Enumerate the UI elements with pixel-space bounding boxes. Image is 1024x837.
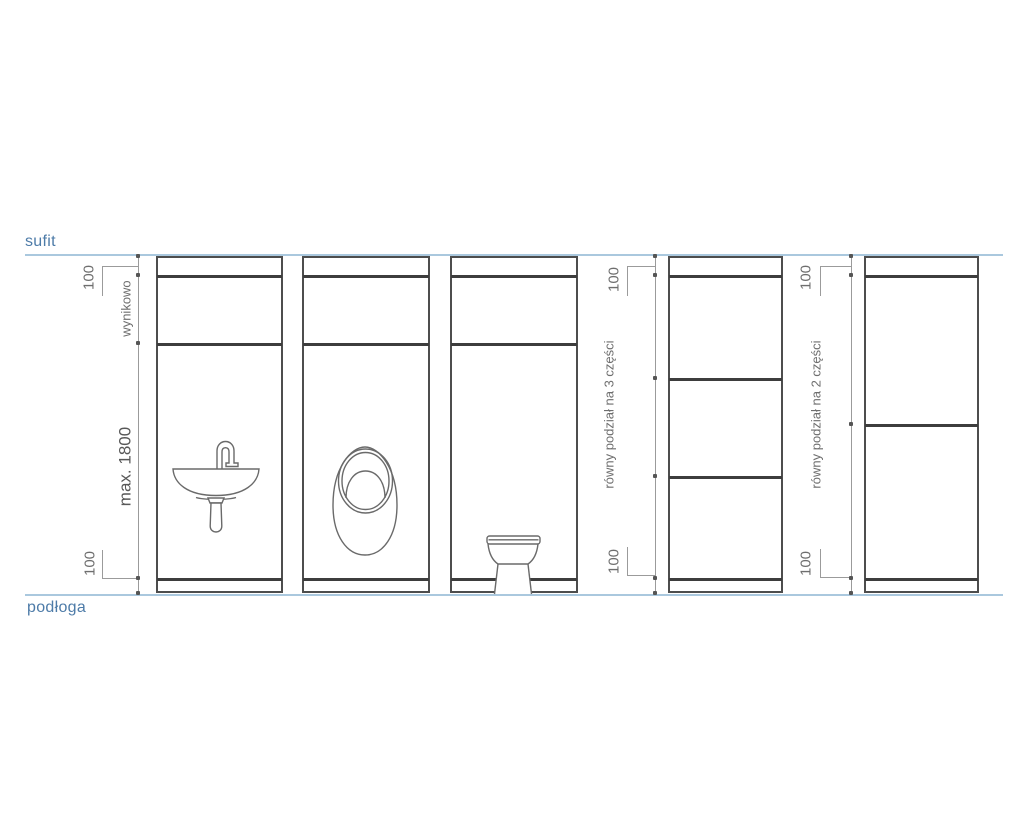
dim-leader (102, 578, 138, 579)
dim-leader (102, 550, 103, 578)
dim-100-top-panel4: 100 (607, 262, 622, 298)
dim-leader (102, 266, 103, 296)
dim-leader (820, 549, 821, 577)
dimension-tick (849, 422, 853, 426)
dim-division-2: równy podział na 2 części (810, 325, 823, 505)
panel-rail-line (865, 275, 978, 278)
panel-rail-line (157, 343, 282, 346)
panel-rail-line (303, 578, 429, 581)
dim-leader (627, 547, 628, 575)
dimension-tick (136, 591, 140, 595)
dimension-line-left (138, 255, 139, 594)
dim-leader (820, 266, 851, 267)
urinal-icon (330, 444, 400, 558)
dim-leader (627, 266, 628, 296)
dim-100-bottom-panel4: 100 (607, 544, 622, 580)
dimension-tick (653, 576, 657, 580)
toilet-icon (482, 532, 544, 596)
dim-leader (627, 575, 655, 576)
panel-division-3 (668, 256, 783, 593)
dim-max-1800: max. 1800 (117, 412, 134, 522)
panel-rail-line (451, 275, 577, 278)
panel-rail-line (865, 578, 978, 581)
panel-rail-line (451, 343, 577, 346)
panel-rail-line (157, 578, 282, 581)
dimension-tick (136, 254, 140, 258)
dimension-tick (849, 576, 853, 580)
dim-leader (820, 266, 821, 296)
panel-rail-line (303, 275, 429, 278)
dimension-tick (653, 474, 657, 478)
dimension-tick (653, 591, 657, 595)
dim-leader (627, 266, 655, 267)
panel-rail-line (865, 424, 978, 427)
dim-100-top-panel5: 100 (799, 260, 814, 296)
dimension-tick (653, 376, 657, 380)
floor-label: podłoga (27, 599, 86, 617)
panel-rail-line (303, 343, 429, 346)
elevation-diagram: sufit podłoga 100 wynikowo max. 1800 100… (0, 0, 1024, 837)
dimension-tick (136, 576, 140, 580)
panel-rail-line (669, 275, 782, 278)
dimension-tick (136, 341, 140, 345)
dimension-line-panel4 (655, 255, 656, 594)
dimension-tick (849, 591, 853, 595)
dim-100-bottom-panel5: 100 (799, 546, 814, 582)
panel-division-2 (864, 256, 979, 593)
dim-leader (820, 577, 851, 578)
dim-100-top-left: 100 (82, 260, 97, 296)
panel-rail-line (157, 275, 282, 278)
dimension-tick (653, 254, 657, 258)
panel-rail-line (669, 476, 782, 479)
dimension-tick (136, 273, 140, 277)
dim-100-bottom-left: 100 (83, 546, 98, 582)
panel-rail-line (669, 378, 782, 381)
dimension-tick (653, 273, 657, 277)
dim-division-3: równy podział na 3 części (603, 325, 616, 505)
sink-icon (168, 438, 264, 538)
dimension-tick (849, 273, 853, 277)
panel-sink (156, 256, 283, 593)
dimension-tick (849, 254, 853, 258)
panel-rail-line (669, 578, 782, 581)
dim-wynikowo: wynikowo (120, 274, 133, 344)
ceiling-label: sufit (25, 233, 56, 251)
dim-leader (102, 266, 138, 267)
